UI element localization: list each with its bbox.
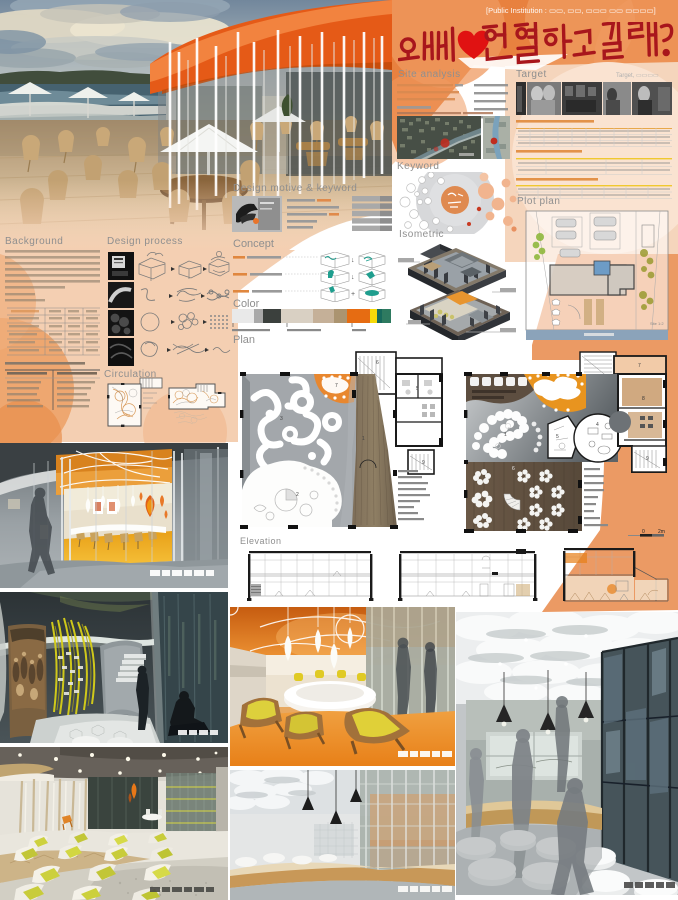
svg-text:+: + [351, 291, 355, 298]
svg-text:↓: ↓ [351, 274, 355, 281]
svg-text:7: 7 [638, 363, 641, 369]
svg-text:1: 1 [362, 436, 365, 442]
svg-text:5: 5 [556, 434, 559, 440]
svg-text:1: 1 [504, 432, 507, 438]
svg-text:5: 5 [416, 386, 419, 392]
svg-text:Site 1:2: Site 1:2 [650, 321, 664, 326]
svg-text:7: 7 [335, 383, 338, 389]
svg-text:6: 6 [376, 360, 379, 366]
svg-text:6: 6 [512, 466, 515, 472]
svg-text:4: 4 [596, 422, 599, 428]
svg-text:2: 2 [488, 380, 491, 386]
svg-text:↓: ↓ [351, 257, 355, 264]
svg-text:3: 3 [554, 386, 557, 392]
svg-text:8: 8 [642, 396, 645, 402]
svg-text:9: 9 [646, 456, 649, 462]
svg-text:2: 2 [296, 492, 299, 498]
svg-text:3: 3 [280, 416, 283, 422]
svg-text:9: 9 [422, 460, 425, 466]
